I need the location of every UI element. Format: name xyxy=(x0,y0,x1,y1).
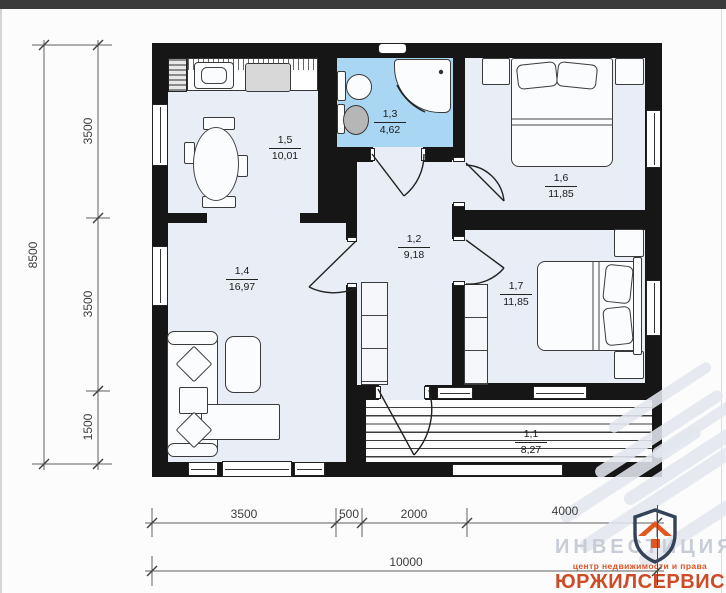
room-area: 11,85 xyxy=(484,295,548,309)
dim-bottom-segment: 2000 xyxy=(384,507,444,521)
door-leaf xyxy=(466,163,504,201)
dim-left-segment: 3500 xyxy=(81,274,95,334)
shield-house-icon xyxy=(631,508,679,564)
shower-head-icon xyxy=(439,70,443,74)
room-number: 1,2 xyxy=(398,233,431,248)
room-area: 10,01 xyxy=(253,149,317,163)
door-leaf xyxy=(466,240,504,268)
door-leaf xyxy=(378,389,414,455)
dim-bottom-segment: 3500 xyxy=(214,507,274,521)
room-number: 1,3 xyxy=(374,108,407,123)
door-arc xyxy=(414,390,432,455)
room-label-hallway: 1,2 9,18 xyxy=(382,233,446,262)
room-label-terrace: 1,1 8,27 xyxy=(499,428,563,457)
dim-left-segment: 1500 xyxy=(81,397,95,457)
room-label-kitchen: 1,5 10,01 xyxy=(253,134,317,163)
plan-linework xyxy=(0,0,726,593)
room-number: 1,1 xyxy=(515,428,548,443)
dim-bottom-segment: 4000 xyxy=(535,504,595,518)
room-label-living: 1,4 16,97 xyxy=(210,265,274,294)
dim-total-width: 10000 xyxy=(376,555,436,569)
dim-total-height: 8500 xyxy=(26,225,40,285)
floor-plan-screenshot: 1,5 10,01 1,3 4,62 1,6 11,85 1,2 9,18 1,… xyxy=(0,0,726,593)
room-area: 16,97 xyxy=(210,280,274,294)
room-label-bedroom-top: 1,6 11,85 xyxy=(529,172,593,201)
room-area: 11,85 xyxy=(529,187,593,201)
room-area: 4,62 xyxy=(358,123,422,137)
room-number: 1,6 xyxy=(545,172,578,187)
door-leaf xyxy=(372,154,404,196)
watermark-tagline: центр недвижимости и права xyxy=(552,561,726,571)
door-arc xyxy=(309,287,356,293)
room-label-bathroom: 1,3 4,62 xyxy=(358,108,422,137)
room-area: 8,27 xyxy=(499,443,563,457)
room-number: 1,7 xyxy=(500,280,533,295)
dim-left-segment: 3500 xyxy=(81,101,95,161)
room-number: 1,5 xyxy=(269,134,302,149)
room-area: 9,18 xyxy=(382,248,446,262)
room-label-bedroom-bottom: 1,7 11,85 xyxy=(484,280,548,309)
door-leaf xyxy=(309,241,356,287)
watermark-company: ЮРЖИЛСЕРВИС xyxy=(550,571,726,593)
dim-guide-line xyxy=(657,505,658,585)
room-number: 1,4 xyxy=(226,265,259,280)
door-arc xyxy=(404,154,424,196)
dim-bottom-segment: 500 xyxy=(329,507,369,521)
